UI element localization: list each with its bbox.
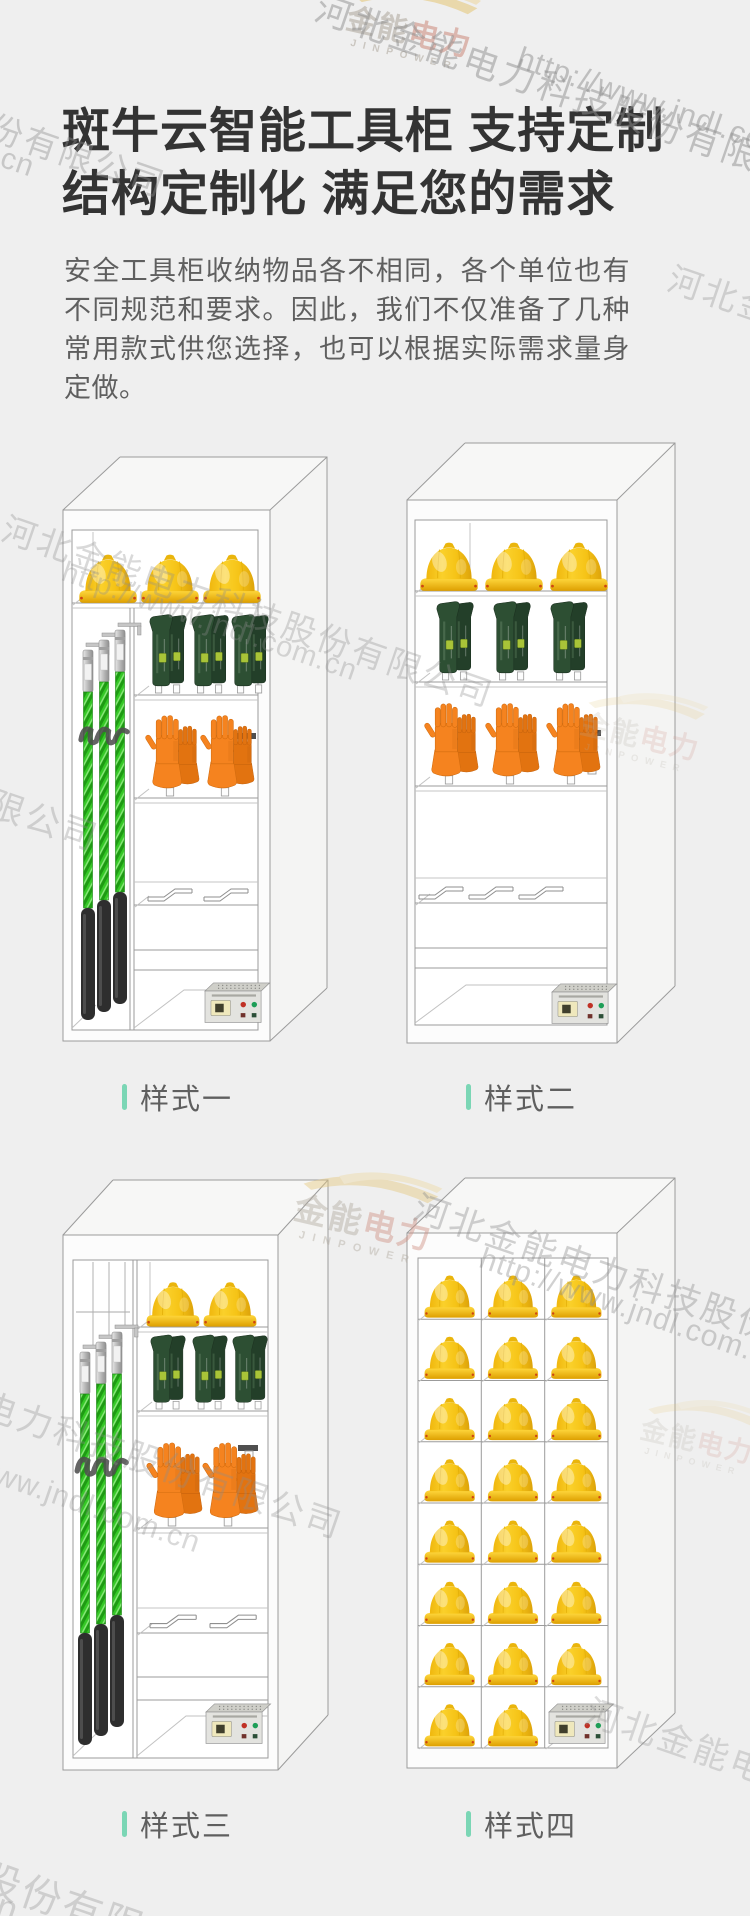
cabinet-illustration-2 (407, 443, 675, 1043)
style-label-text: 样式四 (484, 1803, 577, 1845)
label-accent-bar (466, 1811, 471, 1837)
style-label-text: 样式一 (140, 1076, 233, 1118)
style-label-1: 样式一 (122, 1076, 233, 1118)
label-accent-bar (466, 1084, 471, 1110)
page-title: 斑牛云智能工具柜 支持定制 结构定制化 满足您的需求 (62, 100, 664, 226)
insulated-boots-pair (193, 1335, 227, 1409)
label-accent-bar (122, 1811, 127, 1837)
style-label-3: 样式三 (122, 1803, 233, 1845)
style-label-4: 样式四 (466, 1803, 577, 1845)
insulated-boots-pair (233, 1335, 267, 1409)
cabinet-illustration-1 (63, 457, 327, 1041)
insulated-boots-pair (151, 1335, 185, 1409)
insulated-boots-pair (150, 615, 186, 693)
dehumidifier-controller (206, 1704, 271, 1744)
dehumidifier-controller (205, 983, 270, 1023)
insulated-boots-pair (192, 615, 228, 693)
insulated-boots-pair (551, 602, 587, 680)
dehumidifier-controller (552, 984, 617, 1024)
description-text: 安全工具柜收纳物品各不相同，各个单位也有不同规范和要求。因此，我们不仅准备了几种… (64, 252, 630, 408)
dehumidifier-controller (549, 1704, 614, 1744)
insulated-boots-pair (437, 602, 473, 680)
product-detail-page: 斑牛云智能工具柜 支持定制 结构定制化 满足您的需求 安全工具柜收纳物品各不相同… (0, 0, 750, 1916)
style-label-text: 样式三 (140, 1803, 233, 1845)
title-line-2: 结构定制化 满足您的需求 (62, 163, 664, 226)
title-line-1: 斑牛云智能工具柜 支持定制 (62, 100, 664, 163)
cabinet-illustration-4 (407, 1178, 675, 1768)
style-label-2: 样式二 (466, 1076, 577, 1118)
style-label-text: 样式二 (484, 1076, 577, 1118)
cabinet-illustration-3 (63, 1180, 328, 1770)
insulated-boots-pair (232, 615, 268, 693)
label-accent-bar (122, 1084, 127, 1110)
insulated-boots-pair (494, 602, 530, 680)
